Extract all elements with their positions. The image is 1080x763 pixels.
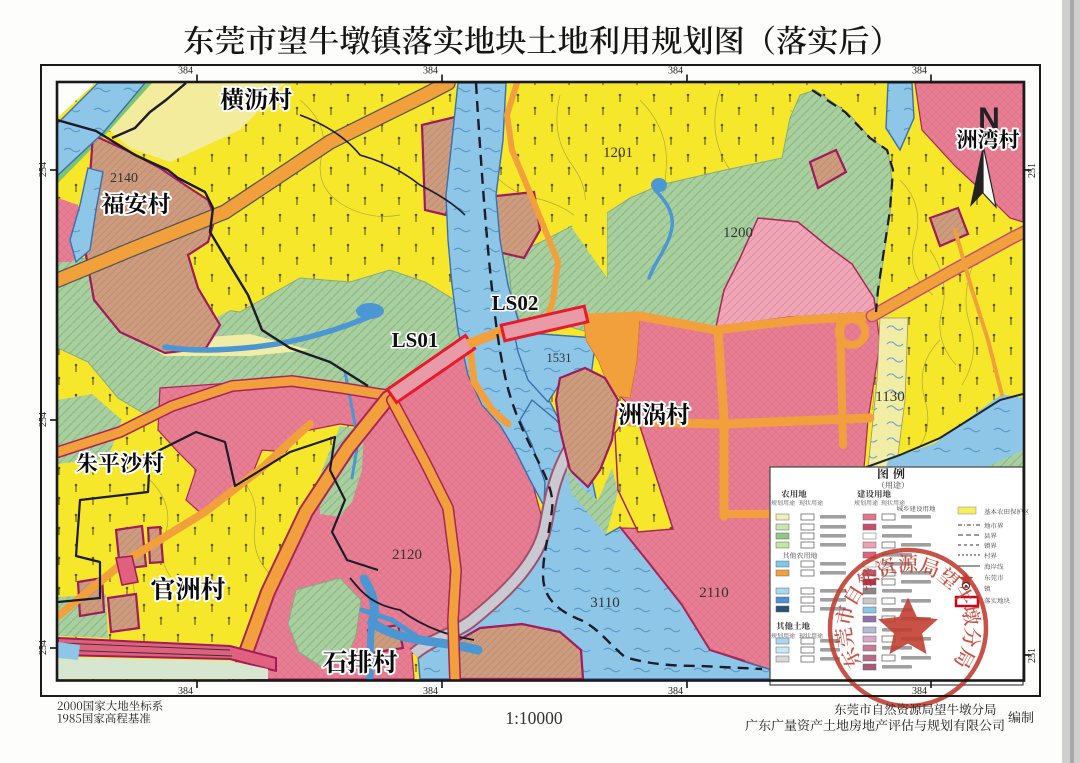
svg-text:1130: 1130 bbox=[875, 389, 904, 405]
svg-text:1531: 1531 bbox=[547, 351, 572, 365]
svg-text:384: 384 bbox=[668, 686, 683, 697]
svg-text:384: 384 bbox=[668, 66, 683, 77]
svg-text:2110: 2110 bbox=[699, 585, 728, 601]
svg-text:1201: 1201 bbox=[603, 145, 633, 161]
svg-text:384: 384 bbox=[912, 66, 927, 77]
svg-text:251: 251 bbox=[1027, 648, 1038, 663]
svg-text:3110: 3110 bbox=[590, 595, 619, 611]
svg-text:LS01: LS01 bbox=[392, 328, 439, 352]
svg-text:1200: 1200 bbox=[723, 225, 753, 241]
svg-text:384: 384 bbox=[178, 686, 193, 697]
svg-text:384: 384 bbox=[912, 686, 927, 697]
svg-text:LS02: LS02 bbox=[492, 291, 539, 315]
svg-text:1:10000: 1:10000 bbox=[505, 708, 563, 728]
svg-text:251: 251 bbox=[1027, 163, 1038, 178]
svg-text:384: 384 bbox=[423, 686, 438, 697]
svg-text:2140: 2140 bbox=[110, 171, 138, 186]
svg-text:384: 384 bbox=[178, 66, 193, 77]
svg-text:384: 384 bbox=[423, 66, 438, 77]
svg-text:254: 254 bbox=[38, 162, 49, 177]
svg-text:254: 254 bbox=[38, 412, 49, 427]
svg-text:2120: 2120 bbox=[392, 547, 422, 563]
svg-text:254: 254 bbox=[38, 640, 49, 655]
